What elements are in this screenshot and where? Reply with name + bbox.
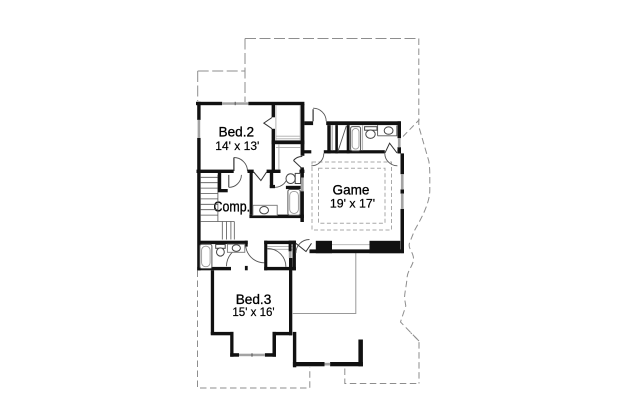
svg-text:14' x 13': 14' x 13' <box>215 139 259 153</box>
svg-text:15' x 16': 15' x 16' <box>232 305 274 319</box>
svg-text:Game: Game <box>333 182 370 198</box>
svg-text:Comp.: Comp. <box>214 198 251 215</box>
svg-text:Bed.2: Bed.2 <box>219 123 255 139</box>
svg-text:19' x 17': 19' x 17' <box>330 197 375 211</box>
